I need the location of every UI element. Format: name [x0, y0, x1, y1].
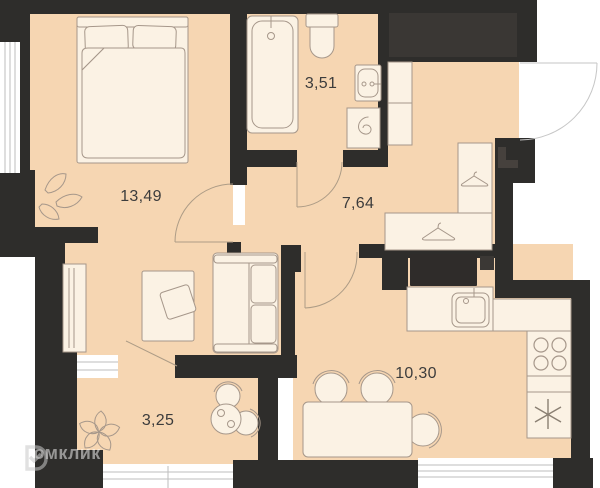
wardrobe-hanger-1 [458, 143, 492, 213]
room-area-label-bedroom: 13,49 [120, 188, 162, 206]
floor-plan-drawing [0, 0, 600, 488]
domclick-logo-icon [20, 443, 50, 473]
floor-plan: 13,49 3,51 7,64 3,25 10,30 Домклик [0, 0, 600, 488]
window-bedroom-west [0, 42, 20, 173]
window-loggia-south [103, 466, 233, 488]
counter-dark-box [480, 256, 494, 270]
chair-icon [361, 373, 393, 405]
ventilation-shaft-inner [389, 13, 517, 57]
watermark: Домклик [20, 443, 101, 464]
room-area-label-kitchen: 10,30 [395, 365, 437, 383]
room-area-label-hallway: 7,64 [342, 195, 374, 213]
room-area-label-bathroom: 3,51 [305, 75, 337, 93]
desk-icon [142, 271, 197, 341]
washbasin-icon [355, 65, 381, 101]
bathtub-icon [247, 16, 298, 133]
wardrobe-hanger-2 [385, 213, 492, 250]
chair-icon [315, 373, 347, 405]
blanket [82, 48, 185, 158]
washing-machine-icon [347, 108, 380, 148]
window-kitchen-south [418, 458, 553, 488]
window-living-loggia [77, 355, 118, 378]
entrance-door-icon [520, 63, 597, 140]
sofa-icon [213, 253, 278, 353]
wardrobe-icon [63, 264, 86, 352]
toilet-icon [306, 14, 338, 58]
bed-icon [77, 17, 188, 163]
room-area-label-loggia: 3,25 [142, 412, 174, 430]
cabinet-icon [388, 62, 412, 145]
fridge-icon [410, 254, 477, 286]
